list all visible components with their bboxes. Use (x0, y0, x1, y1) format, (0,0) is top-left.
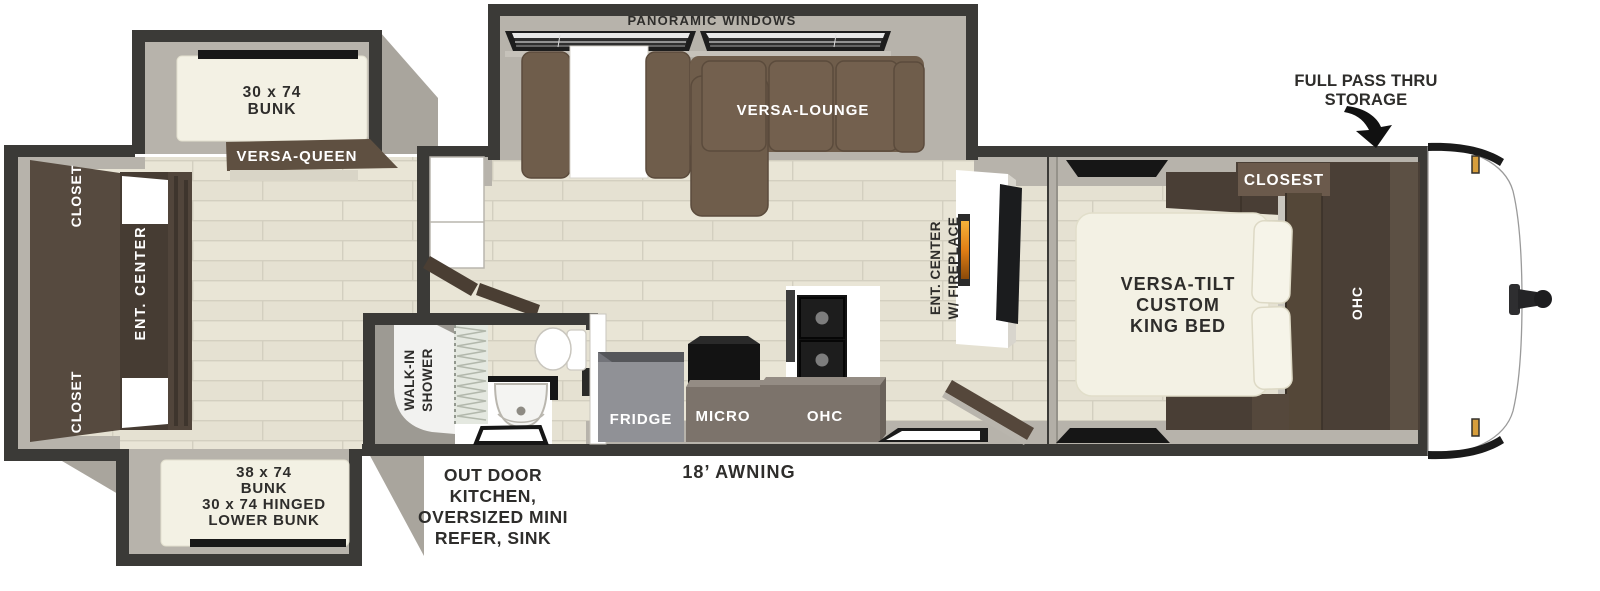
svg-text:BUNK: BUNK (241, 480, 288, 497)
svg-text:OVERSIZED MINI: OVERSIZED MINI (418, 507, 568, 527)
svg-text:W/ FIREPLACE: W/ FIREPLACE (946, 217, 961, 320)
svg-text:OUT DOOR: OUT DOOR (444, 465, 542, 485)
svg-text:VERSA-LOUNGE: VERSA-LOUNGE (737, 102, 870, 119)
svg-text:CLOSET: CLOSET (68, 371, 84, 434)
svg-text:FRIDGE: FRIDGE (610, 411, 673, 428)
svg-text:18’ AWNING: 18’ AWNING (682, 462, 795, 482)
svg-text:KITCHEN,: KITCHEN, (450, 486, 537, 506)
svg-text:30 x 74 HINGED: 30 x 74 HINGED (202, 496, 326, 513)
svg-text:LOWER BUNK: LOWER BUNK (208, 512, 319, 529)
svg-text:CUSTOM: CUSTOM (1136, 295, 1220, 315)
svg-text:VERSA-TILT: VERSA-TILT (1121, 274, 1236, 294)
svg-text:ENT. CENTER: ENT. CENTER (133, 226, 149, 341)
svg-text:OHC: OHC (807, 408, 843, 425)
svg-text:ENT. CENTER: ENT. CENTER (928, 221, 943, 315)
svg-text:MICRO: MICRO (696, 408, 751, 425)
svg-text:KING BED: KING BED (1130, 316, 1226, 336)
svg-text:38 x 74: 38 x 74 (236, 464, 292, 481)
svg-text:BUNK: BUNK (248, 101, 297, 118)
svg-text:OHC: OHC (1349, 286, 1365, 320)
svg-text:REFER, SINK: REFER, SINK (435, 528, 551, 548)
svg-text:30 x 74: 30 x 74 (243, 84, 302, 101)
svg-text:WALK-IN: WALK-IN (402, 349, 417, 410)
svg-text:FULL PASS THRU: FULL PASS THRU (1294, 72, 1437, 90)
svg-text:SHOWER: SHOWER (420, 348, 435, 412)
svg-text:CLOSEST: CLOSEST (1244, 172, 1324, 189)
svg-text:PANORAMIC WINDOWS: PANORAMIC WINDOWS (628, 13, 797, 28)
svg-text:VERSA-QUEEN: VERSA-QUEEN (236, 148, 357, 165)
svg-text:CLOSET: CLOSET (68, 165, 84, 228)
svg-text:STORAGE: STORAGE (1325, 91, 1408, 109)
